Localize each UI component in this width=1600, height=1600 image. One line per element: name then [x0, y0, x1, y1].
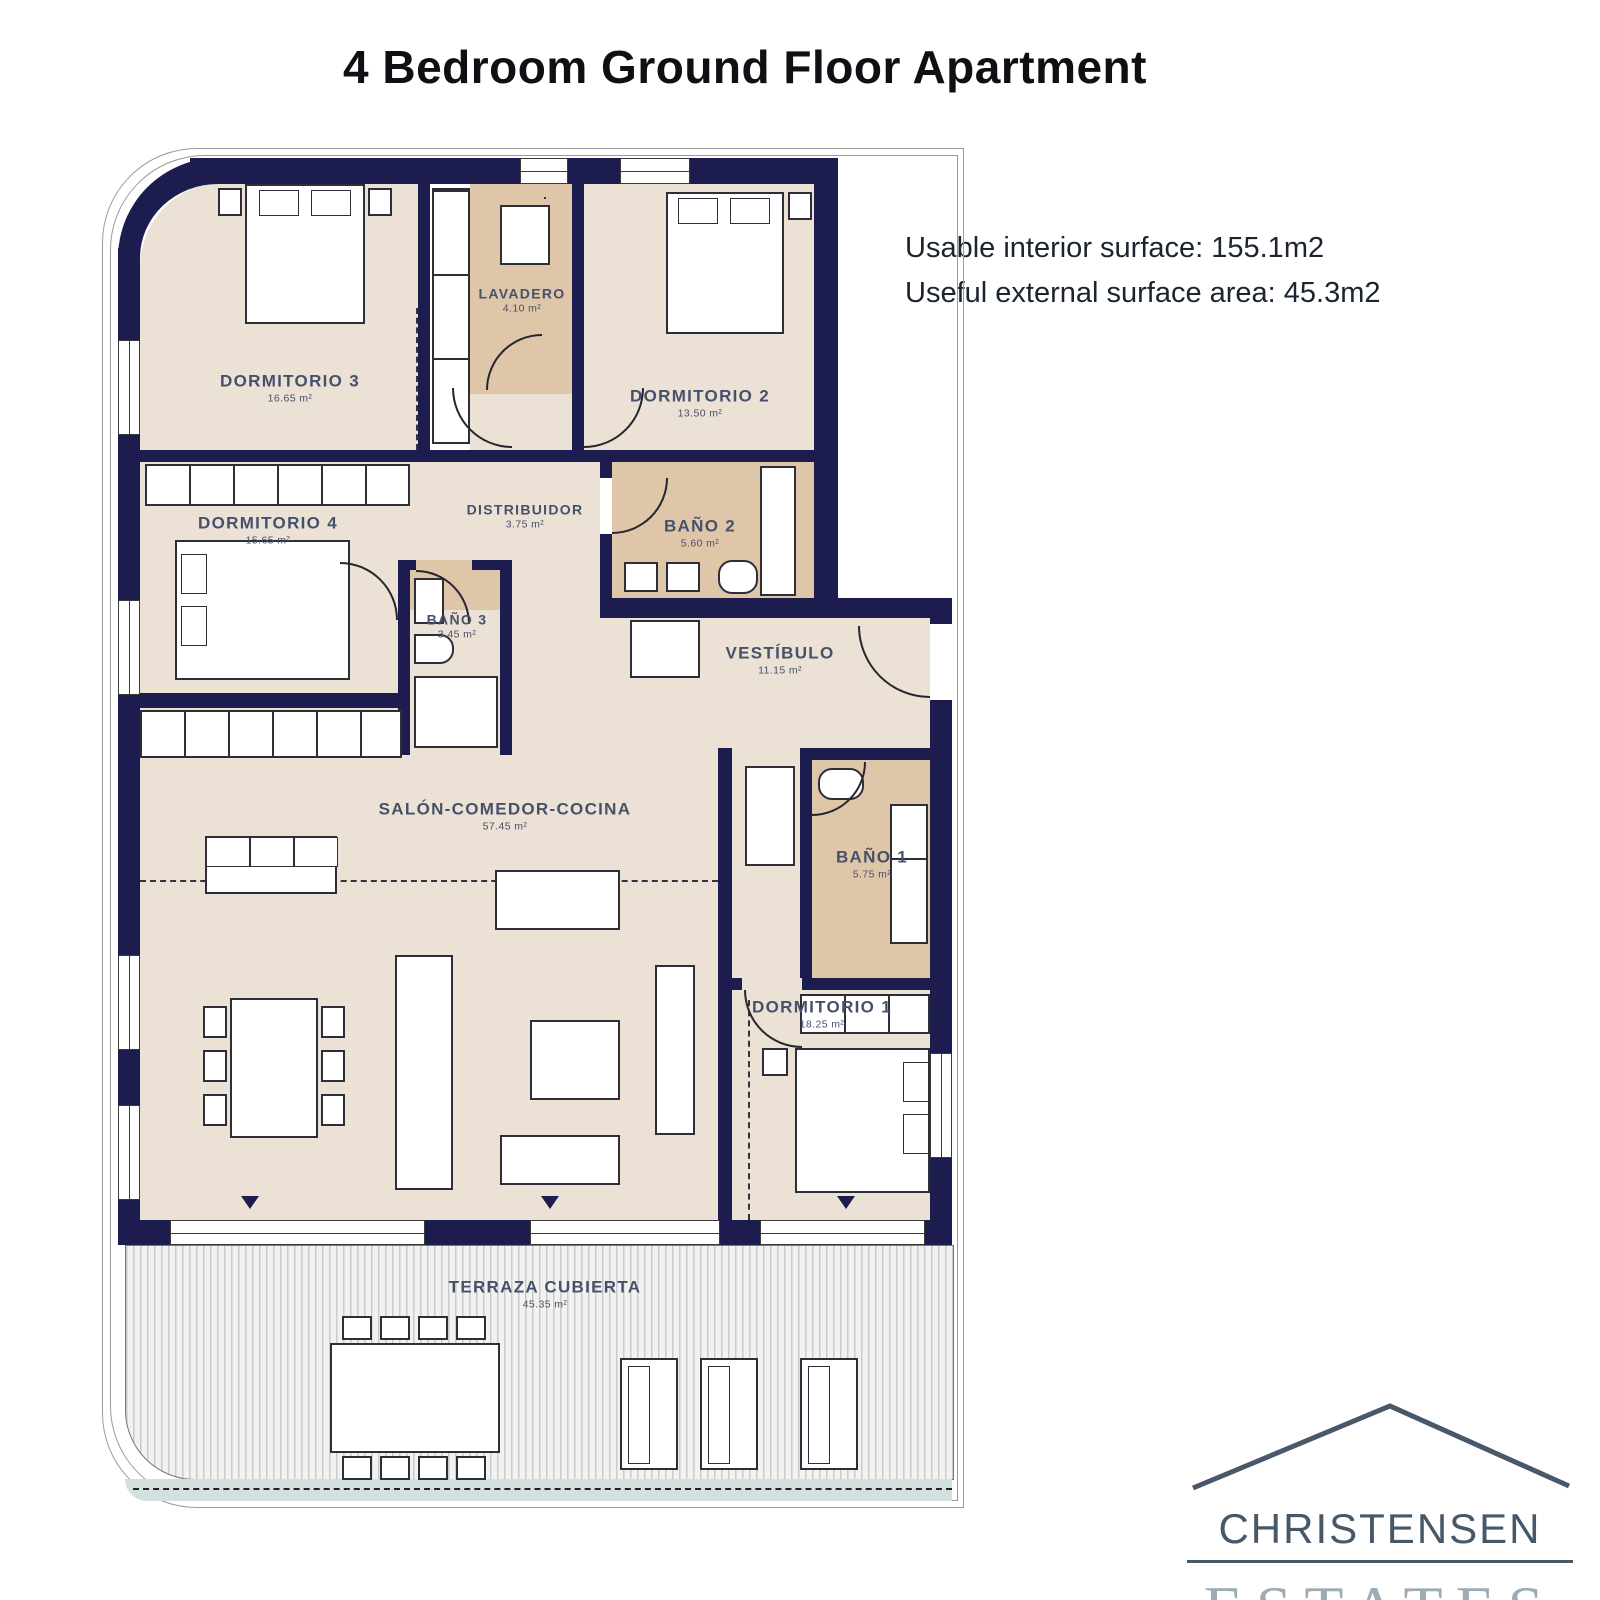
section-line-vertical [416, 308, 418, 450]
kitchen-counter [140, 710, 402, 758]
logo-name-top: CHRISTENSEN [1185, 1505, 1575, 1553]
closet-bano2 [760, 466, 796, 596]
wall-bano3-top-b [472, 560, 512, 570]
sun-lounger [800, 1358, 858, 1470]
label-salon: SALÓN-COMEDOR-COCINA57.45 m² [379, 800, 632, 833]
wall-distribuidor-bano2-b [600, 534, 612, 610]
label-distribuidor: DISTRIBUIDOR3.75 m² [467, 502, 584, 531]
chair [203, 1006, 227, 1038]
bench [500, 1135, 620, 1185]
window-left-4 [118, 1105, 140, 1200]
chair [321, 1006, 345, 1038]
lavadero-appliance-outline [544, 197, 546, 199]
wall-distribuidor-bano2-a [600, 462, 612, 478]
nightstand-dorm3-left [218, 188, 242, 216]
chair [321, 1094, 345, 1126]
chair [380, 1456, 410, 1480]
logo-roof-icon [1185, 1396, 1575, 1496]
label-dormitorio-1: DORMITORIO 118.25 m² [752, 998, 892, 1031]
label-bano-3: BAÑO 33.45 m² [427, 612, 488, 641]
door-direction-icon [541, 1196, 559, 1209]
door-direction-icon [241, 1196, 259, 1209]
wardrobe-dorm4 [145, 464, 410, 506]
window-left-2 [118, 600, 140, 695]
window-top-2 [620, 158, 690, 184]
terrace-edge-band [125, 1479, 952, 1501]
chair [456, 1316, 486, 1340]
label-dormitorio-2: DORMITORIO 213.50 m² [630, 387, 770, 420]
dining-table-terrace [330, 1343, 500, 1453]
label-bano-1: BAÑO 15.75 m² [836, 848, 908, 881]
wall-dorm4-salon [118, 693, 410, 708]
window-top-1 [520, 158, 568, 184]
toilet-bano2 [718, 560, 758, 594]
chair [342, 1456, 372, 1480]
wall-step [600, 598, 952, 618]
side-table [530, 1020, 620, 1100]
wall-bano3-right [500, 560, 512, 755]
chair [380, 1316, 410, 1340]
shelf-corridor [745, 766, 795, 866]
glass-door-salon-1 [170, 1220, 425, 1245]
sofa [205, 836, 337, 894]
bed-dorm4 [175, 540, 350, 680]
wall-dorm1-top-b [802, 978, 952, 990]
glass-door-dorm1 [760, 1220, 925, 1245]
door-direction-icon [837, 1196, 855, 1209]
chair [418, 1456, 448, 1480]
floor-plan: DORMITORIO 316.65 m² LAVADERO4.10 m² DOR… [100, 148, 980, 1540]
wall-dorm1-top-a [732, 978, 742, 990]
kitchen-island [395, 955, 453, 1190]
page-title: 4 Bedroom Ground Floor Apartment [0, 40, 1490, 94]
nightstand-dorm2-right [788, 192, 812, 220]
chair [342, 1316, 372, 1340]
brand-logo: CHRISTENSEN ESTATES [1185, 1396, 1575, 1600]
entrance-opening [930, 624, 952, 700]
label-dormitorio-3: DORMITORIO 316.65 m² [220, 372, 360, 405]
window-left-1 [118, 340, 140, 435]
wall-lavadero-dorm2 [572, 182, 584, 450]
washer-lavadero [500, 205, 550, 265]
bed-dorm3 [245, 184, 365, 324]
wall-dorm3-lavadero [418, 182, 430, 450]
chair [456, 1456, 486, 1480]
chair [418, 1316, 448, 1340]
window-right-dorm1 [930, 1053, 952, 1158]
wall-top [190, 158, 838, 184]
chair [203, 1050, 227, 1082]
shower-bano3 [414, 676, 498, 748]
glass-door-salon-2 [530, 1220, 720, 1245]
wall-vestibulo-bottom-b [800, 748, 952, 760]
coffee-table [495, 870, 620, 930]
label-vestibulo: VESTÍBULO11.15 m² [726, 644, 835, 677]
label-lavadero: LAVADERO4.10 m² [479, 286, 566, 315]
section-line-dorm1 [748, 1000, 750, 1220]
wall-bano3-top-a [398, 560, 416, 570]
cabinet-vestibulo [630, 620, 700, 678]
chair [321, 1050, 345, 1082]
wall-right-upper [814, 158, 838, 618]
label-dormitorio-4: DORMITORIO 415.65 m² [198, 514, 338, 547]
sun-lounger [620, 1358, 678, 1470]
chair [203, 1094, 227, 1126]
wall-top-rooms-bottom [118, 450, 814, 462]
wall-salon-corridor [718, 748, 732, 1222]
wall-bano1-left [800, 760, 812, 978]
logo-name-bottom: ESTATES [1185, 1572, 1575, 1600]
sink-bano2 [624, 562, 658, 592]
sun-lounger [700, 1358, 758, 1470]
label-bano-2: BAÑO 25.60 m² [664, 517, 736, 550]
nightstand-dorm1 [762, 1048, 788, 1076]
bed-dorm1 [795, 1048, 930, 1193]
floorplan-page: 4 Bedroom Ground Floor Apartment Usable … [0, 0, 1600, 1600]
label-terraza: TERRAZA CUBIERTA45.35 m² [449, 1278, 642, 1311]
logo-divider [1187, 1560, 1573, 1563]
dining-table-salon [230, 998, 318, 1138]
window-left-3 [118, 955, 140, 1050]
bed-dorm2 [666, 192, 784, 334]
tv-unit [655, 965, 695, 1135]
sink-bano2 [666, 562, 700, 592]
nightstand-dorm3-right [368, 188, 392, 216]
